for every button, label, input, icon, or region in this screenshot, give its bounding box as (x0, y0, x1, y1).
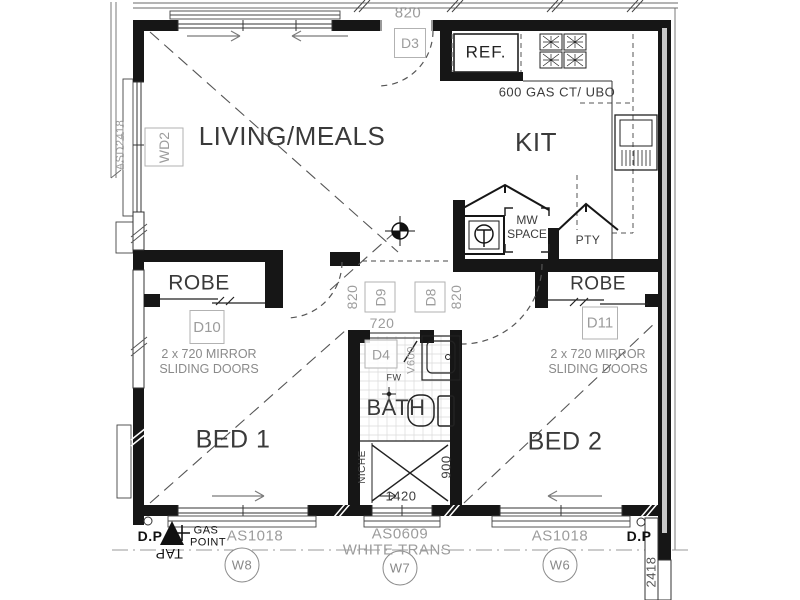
door-tag-d10-label: D10 (193, 319, 221, 336)
door-tag-d10: D10 (190, 310, 225, 344)
door-tag-d11: D11 (582, 307, 618, 340)
door-tag-d3-label: D3 (401, 35, 419, 51)
door-tag-d3: D3 (394, 28, 426, 58)
window-code-w6: AS1018 (532, 529, 588, 544)
robe-left-note-line1: 2 x 720 MIRROR (159, 347, 258, 362)
left-wall-framed-sections (133, 212, 144, 388)
niche-label: NICHE (358, 450, 368, 484)
room-label-living-meals: LIVING/MEALS (199, 123, 386, 149)
right-wall-cavity-stripe (662, 28, 667, 533)
robe-sliding-tracks (160, 297, 648, 306)
downpipe-label-left: D.P (138, 529, 163, 543)
laundry-trough-icon (464, 216, 504, 254)
dim-left-window: ASD2418 (116, 120, 127, 171)
room-label-bed1: BED 1 (196, 428, 271, 453)
fridge-label: REF. (466, 44, 507, 61)
setout-crosshair (385, 216, 415, 246)
door-tag-d11-label: D11 (587, 315, 613, 332)
window-note-w7: WHITE TRANS (343, 543, 452, 558)
gas-point-icon (160, 521, 190, 545)
door-d8-arc (462, 264, 542, 344)
door-tag-d4-label: D4 (372, 346, 390, 362)
door-tag-d4: D4 (365, 340, 398, 369)
cooktop-icon (540, 34, 586, 68)
door-tag-wd2-label: WD2 (156, 131, 172, 162)
microwave-space-line2: SPACE (507, 227, 547, 241)
room-label-robe-left: ROBE (168, 273, 230, 294)
door-tag-d9-label: D9 (372, 288, 388, 306)
dim-shower-width: 900 (440, 455, 453, 478)
window-tag-w8: W8 (232, 559, 253, 572)
dim-vanity: V600 (407, 346, 418, 374)
pantry-label: PTY (576, 234, 601, 246)
sink-icon (615, 115, 657, 170)
floor-plan-linework (0, 0, 800, 600)
dim-entry-door: 820 (395, 6, 422, 21)
robe-left-note: 2 x 720 MIRROR SLIDING DOORS (159, 347, 258, 377)
door-d9-arc (286, 262, 342, 318)
dim-d8-door: 820 (449, 285, 463, 310)
dim-d9-door: 820 (345, 285, 359, 310)
door-tag-wd2: WD2 (145, 128, 184, 167)
robe-right-note: 2 x 720 MIRROR SLIDING DOORS (548, 347, 647, 377)
gas-point-label-line2: POINT (190, 538, 226, 549)
microwave-space-label: MW SPACE (507, 213, 547, 241)
microwave-space-line1: MW (507, 213, 547, 227)
room-label-kitchen: KIT (515, 129, 557, 155)
floor-plan: LIVING/MEALS KIT ROBE ROBE BATH BED 1 BE… (0, 0, 800, 600)
robe-left-note-line2: SLIDING DOORS (159, 362, 258, 377)
dim-bath-door: 720 (370, 316, 395, 330)
window-tag-w7: W7 (390, 562, 411, 575)
cooktop-note: 600 GAS CT/ UBO (499, 86, 616, 99)
tap-label: TAP (155, 547, 183, 561)
room-label-robe-right: ROBE (570, 275, 626, 294)
robe-right-note-line1: 2 x 720 MIRROR (548, 347, 647, 362)
door-tag-d9: D9 (365, 282, 396, 313)
window-code-w8: AS1018 (227, 529, 283, 544)
room-label-bath: BATH (366, 397, 425, 419)
room-label-bed2: BED 2 (528, 430, 603, 455)
robe-right-note-line2: SLIDING DOORS (548, 362, 647, 377)
dim-shower-length: 1420 (386, 490, 417, 503)
window-code-w7: AS0609 (372, 527, 428, 542)
door-tag-d8: D8 (415, 282, 446, 313)
downpipe-label-right: D.P (627, 529, 652, 543)
dim-right-wall: 2418 (645, 557, 658, 588)
window-tag-w6: W6 (550, 559, 571, 572)
floor-waste-label: FW (387, 374, 402, 383)
gas-point-label-line1: GAS (194, 526, 219, 537)
door-tag-d8-label: D8 (422, 288, 438, 306)
